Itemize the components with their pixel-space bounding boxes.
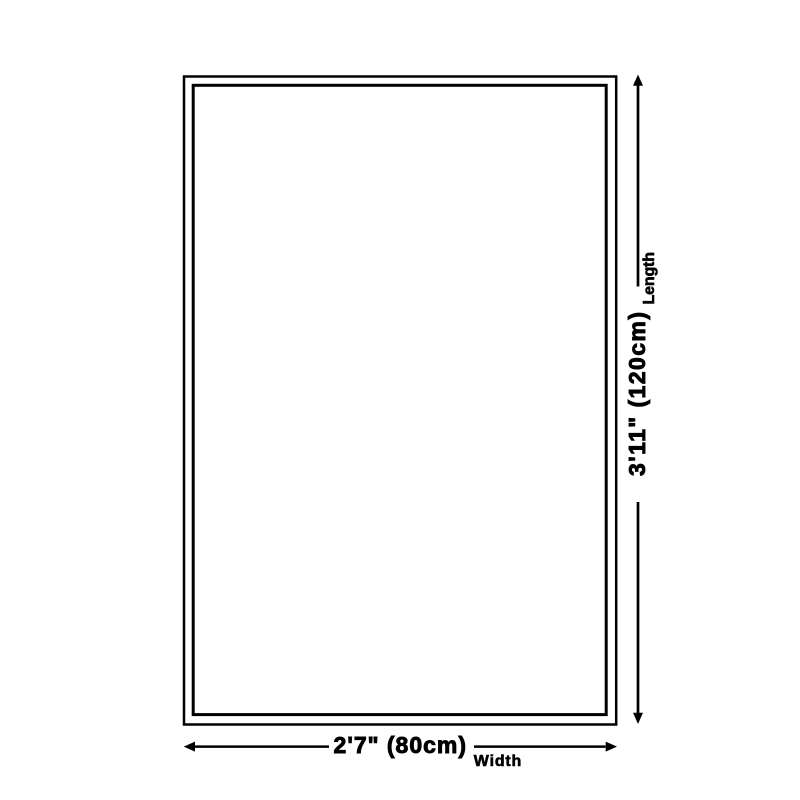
svg-text:3'11" (120cm): 3'11" (120cm) xyxy=(624,312,650,476)
svg-text:Length: Length xyxy=(641,252,658,305)
svg-text:2'7" (80cm): 2'7" (80cm) xyxy=(334,732,467,758)
svg-text:Width: Width xyxy=(474,753,522,770)
